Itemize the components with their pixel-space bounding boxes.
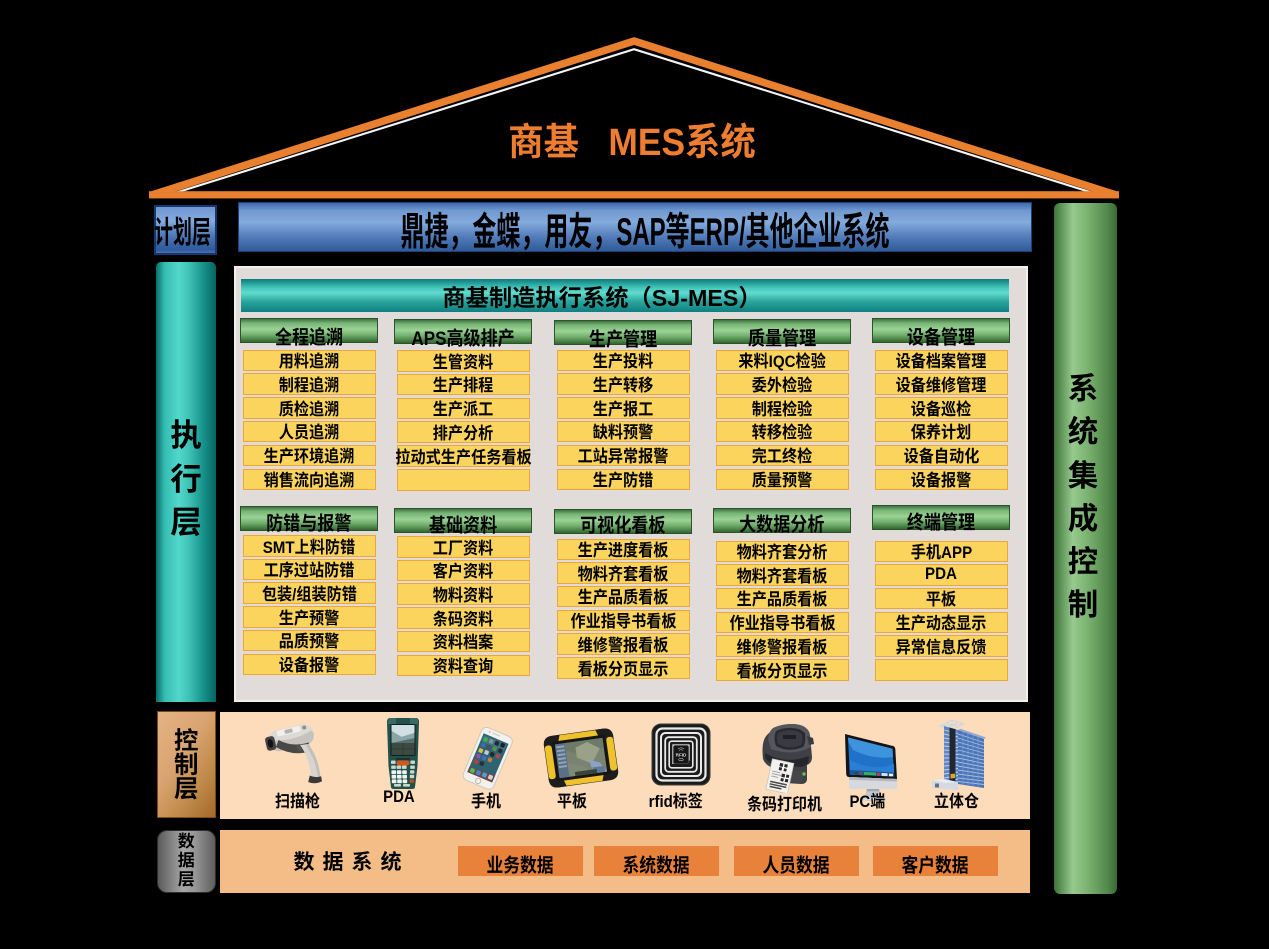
svg-text:RFID: RFID — [676, 753, 687, 758]
